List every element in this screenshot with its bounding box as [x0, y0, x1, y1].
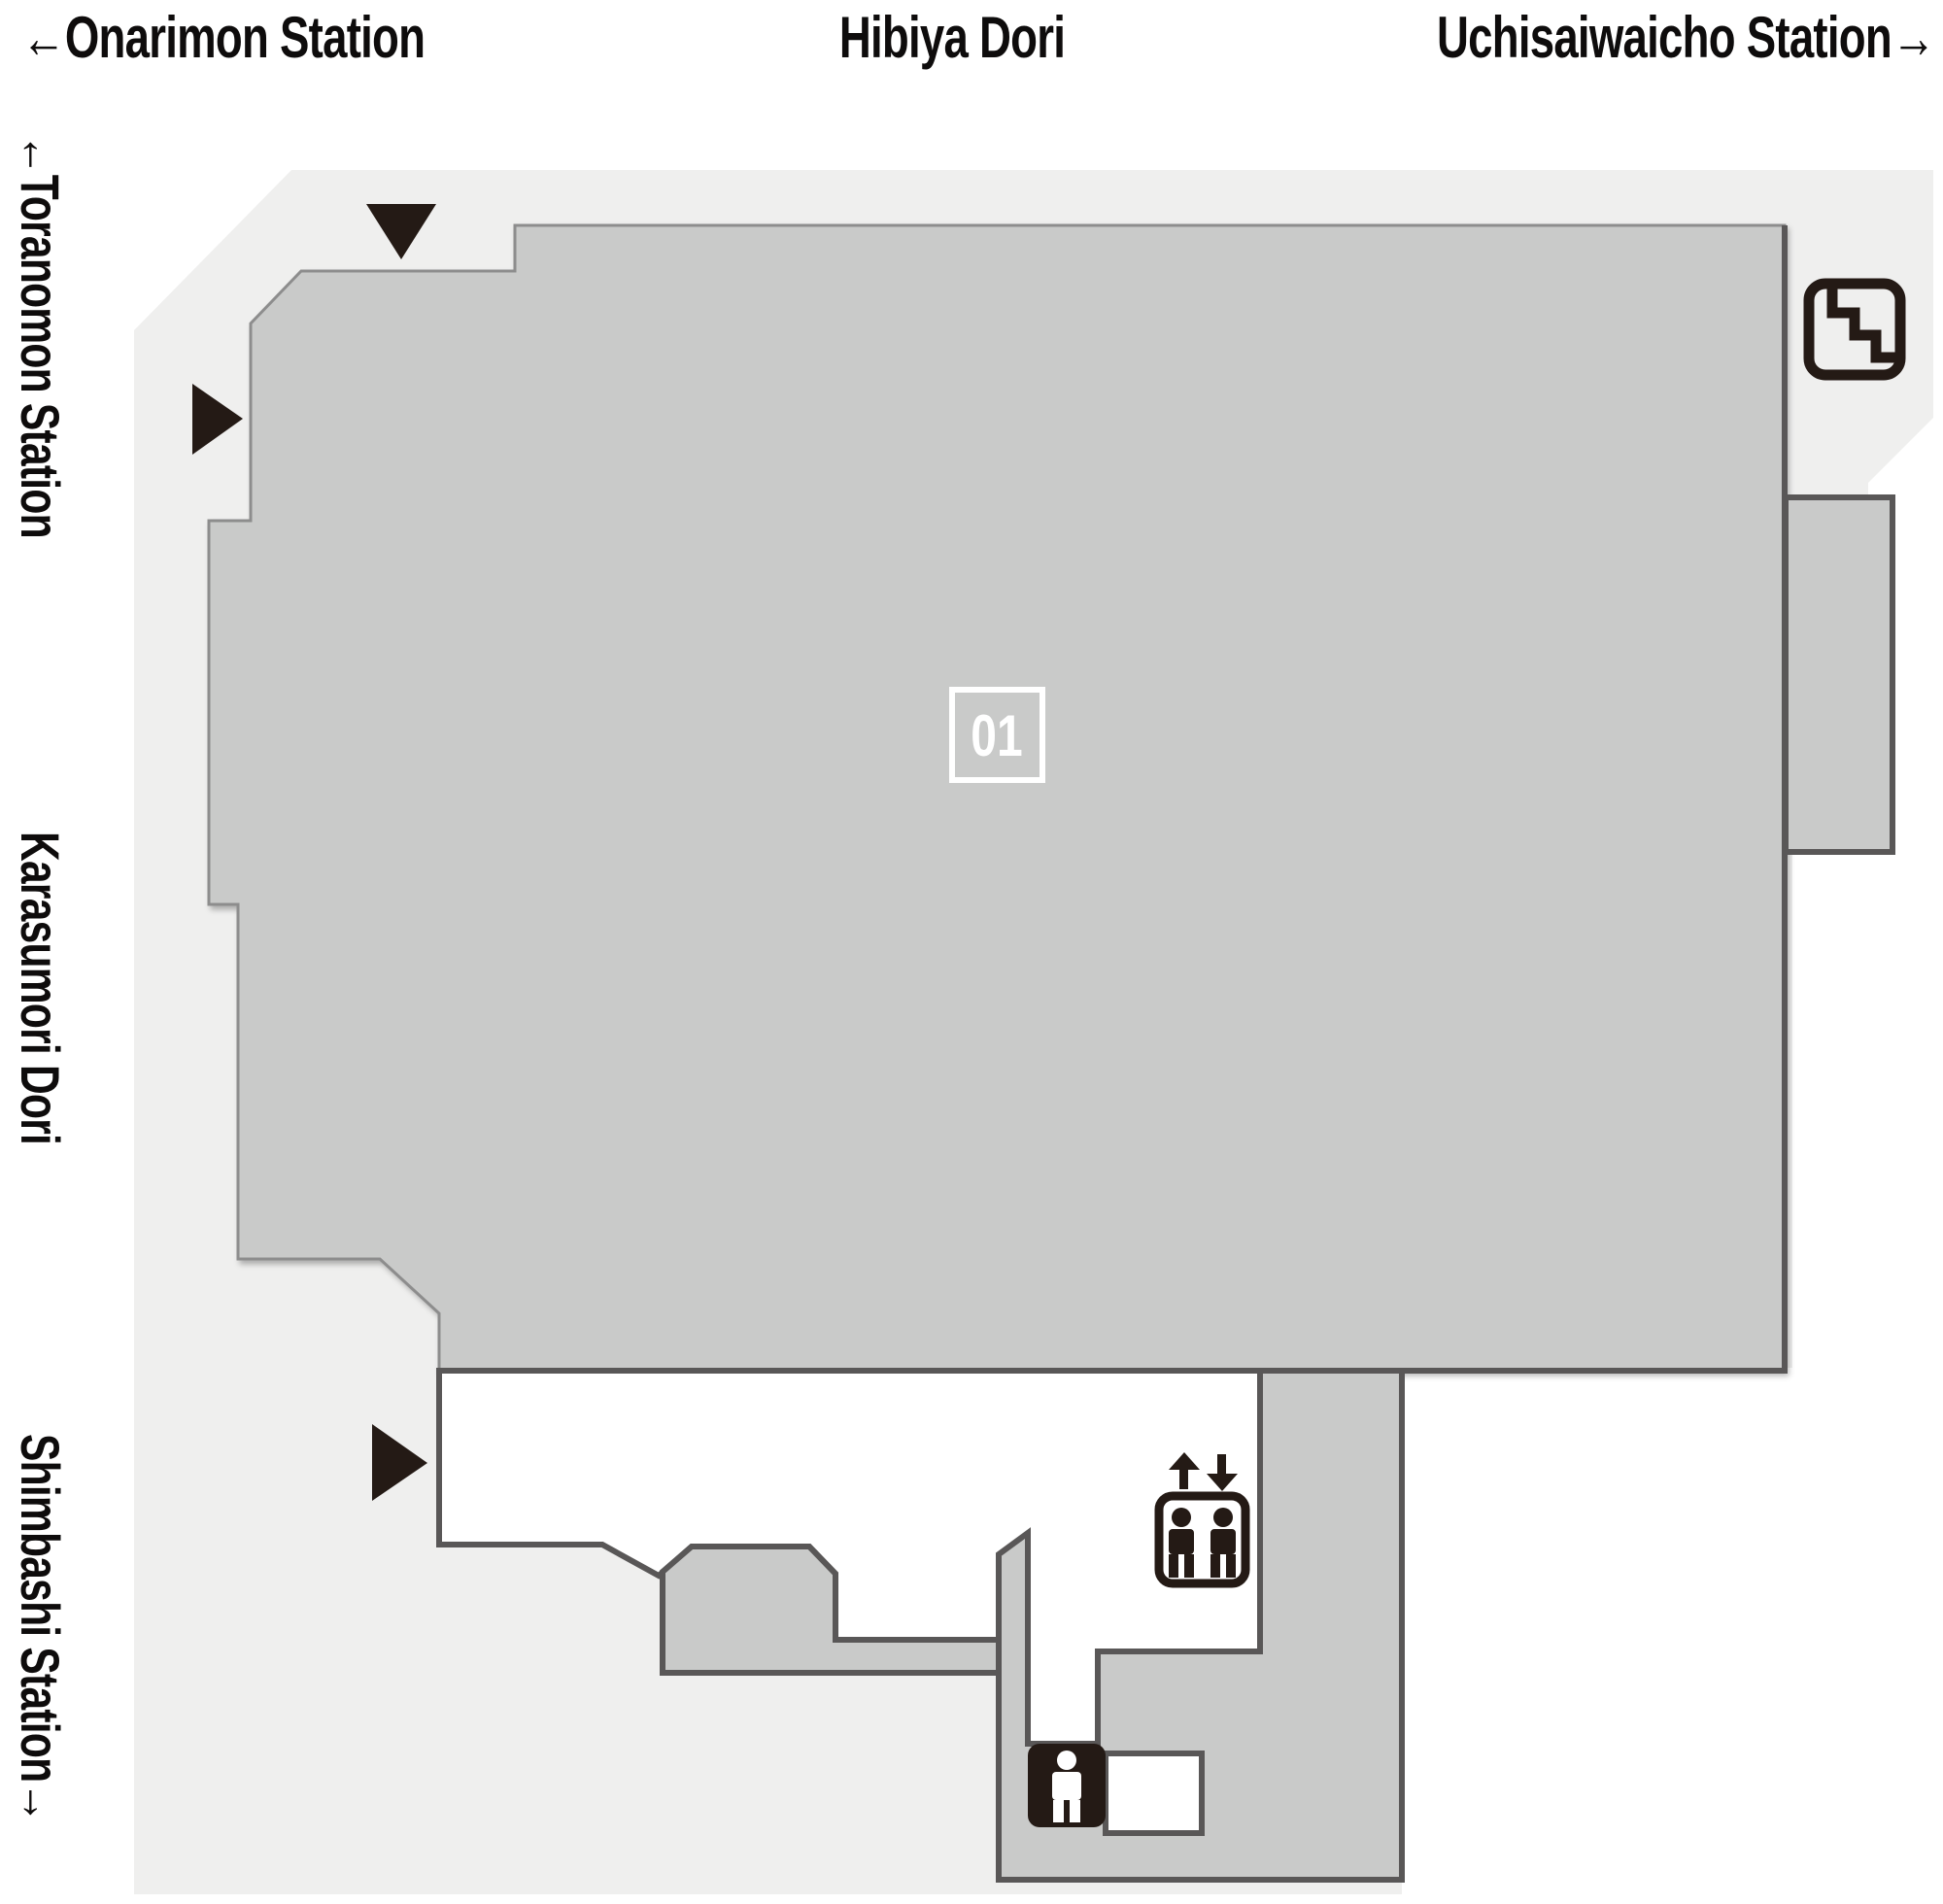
street-label-hibiya-dori: Hibiya Dori — [745, 4, 1159, 71]
toilet-side-room — [1106, 1753, 1202, 1833]
toilet-icon — [1028, 1744, 1106, 1827]
street-label-toranomon: ←Toranomon Station — [9, 134, 72, 538]
street-label-onarimon: ←Onarimon Station — [21, 4, 425, 71]
floor-map-canvas: 01 — [0, 0, 1943, 1904]
street-label-karasumori-dori: Karasumori Dori — [9, 832, 72, 1144]
floor-map: 01 — [0, 0, 1943, 1904]
street-label-uchisaiwaicho: Uchisaiwaicho Station→ — [1437, 4, 1935, 71]
right-wing — [1786, 497, 1892, 852]
main-building-floor — [209, 225, 1785, 1371]
area-01-label: 01 — [971, 703, 1022, 768]
street-label-shimbashi: Shimbashi Station→ — [9, 1434, 72, 1822]
